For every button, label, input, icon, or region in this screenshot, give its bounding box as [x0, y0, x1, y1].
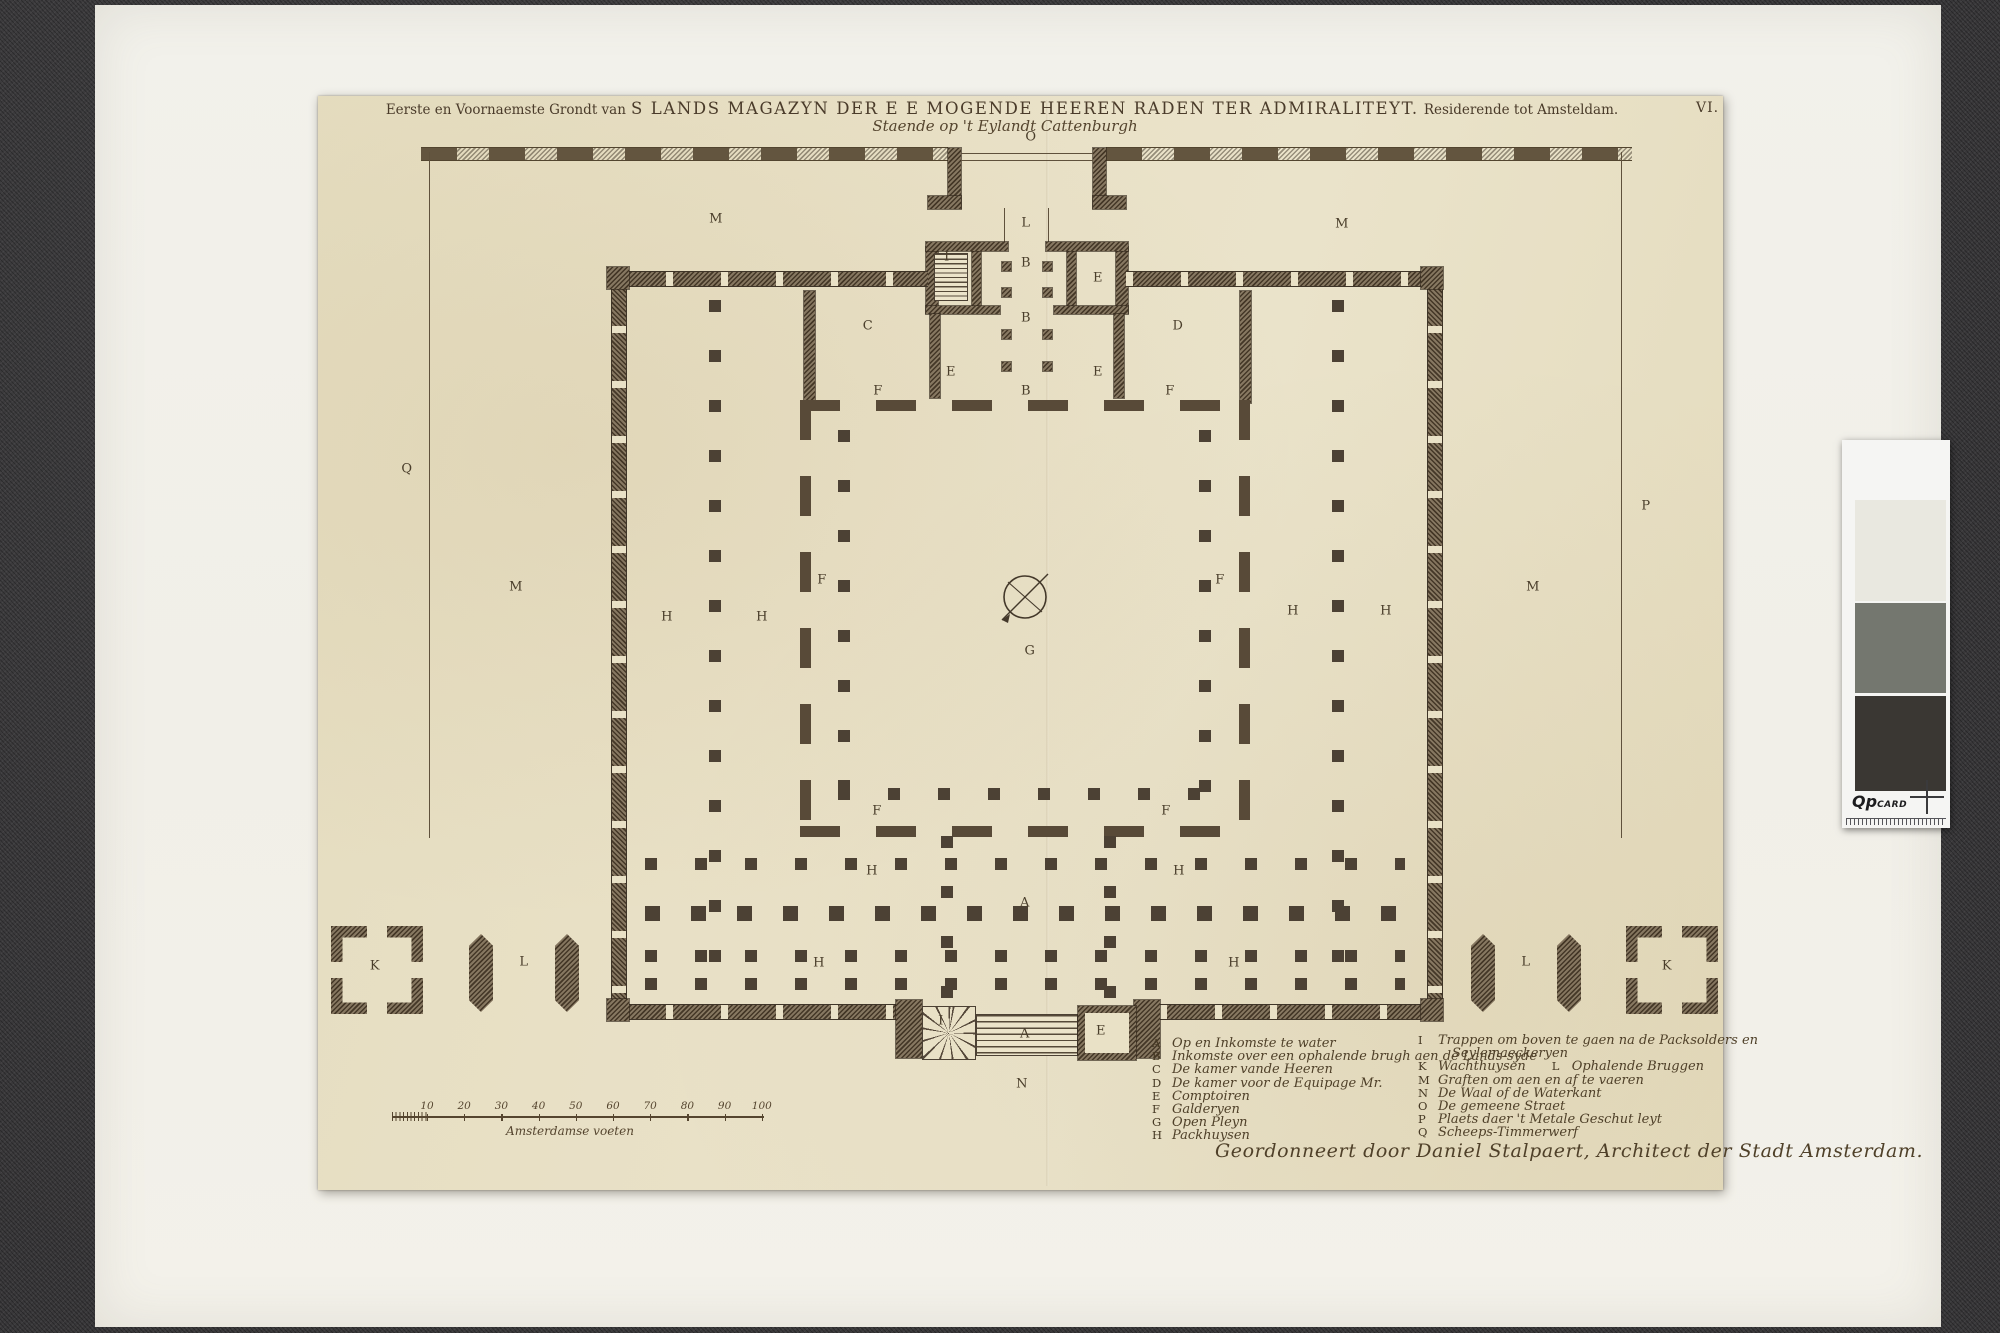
legend-key: C [1152, 1063, 1172, 1076]
card-patch-gray [1855, 603, 1946, 693]
plan-letter-E: E [1093, 365, 1103, 380]
plan-letter-K: K [370, 959, 380, 974]
plan-letter-F: F [872, 804, 882, 819]
legend-key: K [1418, 1060, 1438, 1073]
scale-number: 90 [718, 1100, 731, 1112]
plan-letter-H: H [813, 956, 825, 971]
plan-letter-I: I [938, 1014, 944, 1029]
architect-signature: Geordonneert door Daniel Stalpaert, Arch… [1215, 1140, 1685, 1162]
plan-letter-M: M [1335, 217, 1349, 232]
plan-letter-A: A [1020, 1027, 1030, 1042]
plan-letter-E: E [1096, 1024, 1106, 1039]
plan-letter-H: H [1228, 956, 1240, 971]
legend-right-column: ITrappen om boven te gaen na de Packsold… [1418, 1034, 1758, 1140]
card-ruler [1846, 818, 1946, 825]
scale-number: 60 [606, 1100, 619, 1112]
plan-letter-G: G [1025, 644, 1036, 659]
plan-letter-M: M [509, 580, 523, 595]
plan-letter-F: F [1215, 573, 1225, 588]
plan-letter-L: L [1021, 216, 1030, 231]
scale-tick [613, 1114, 614, 1121]
scale-number: 30 [495, 1100, 508, 1112]
scale-number: 80 [681, 1100, 694, 1112]
plan-letter-L: L [519, 955, 528, 970]
plan-letter-F: F [817, 573, 827, 588]
card-patch-dark [1855, 696, 1946, 791]
plan-letter-H: H [1380, 604, 1392, 619]
qp-card-logo: QpCARD [1852, 792, 1907, 811]
scale-tick [576, 1114, 577, 1121]
scale-tick [762, 1114, 763, 1121]
scale-number: 50 [569, 1100, 582, 1112]
legend-text: Scheeps-Timmerwerf [1438, 1125, 1578, 1140]
scale-tick [427, 1114, 428, 1121]
plan-letter-H: H [1173, 864, 1185, 879]
scale-number: 20 [458, 1100, 471, 1112]
plan-letter-Q: Q [401, 462, 412, 477]
scale-tick [464, 1114, 465, 1121]
plan-letter-F: F [873, 384, 883, 399]
scale-tick [539, 1114, 540, 1121]
plan-letter-E: E [1093, 271, 1103, 286]
scale-tick [725, 1114, 726, 1121]
plan-letter-B: B [1021, 384, 1031, 399]
plan-letter-B: B [1021, 311, 1031, 326]
legend-key: E [1152, 1090, 1172, 1103]
scale-number: 10 [420, 1100, 433, 1112]
legend-key: N [1418, 1087, 1438, 1100]
plan-letter-A: A [1020, 896, 1030, 911]
plan-letter-K: K [1662, 959, 1672, 974]
plan-letter-E: E [946, 365, 956, 380]
plan-letter-C: C [863, 319, 873, 334]
plan-letter-H: H [1287, 604, 1299, 619]
plan-letter-H: H [661, 610, 673, 625]
photo-of-engraving: Eerste en Voornaemste Grondt van S LANDS… [0, 0, 2000, 1333]
plan-letter-H: H [756, 610, 768, 625]
plan-letter-L: L [1521, 955, 1530, 970]
scale-tick [501, 1114, 502, 1121]
plan-letter-M: M [1526, 580, 1540, 595]
plan-letter-F: F [1161, 804, 1171, 819]
plan-letter-O: O [1025, 130, 1036, 145]
legend-key: I [1418, 1034, 1438, 1047]
scale-caption: Amsterdamse voeten [470, 1124, 670, 1138]
scale-number: 70 [644, 1100, 657, 1112]
scale-number: 40 [532, 1100, 545, 1112]
plan-letter-I: I [944, 250, 950, 265]
scale-number: 100 [752, 1100, 772, 1112]
legend-row: QScheeps-Timmerwerf [1418, 1126, 1758, 1139]
legend-key: D [1152, 1077, 1172, 1090]
scale-tick [687, 1114, 688, 1121]
qp-calibration-card: QpCARD [1842, 440, 1950, 828]
plan-letter-P: P [1641, 499, 1650, 514]
plan-letter-H: H [866, 864, 878, 879]
legend-key: M [1418, 1074, 1438, 1087]
crosshair-icon [1910, 780, 1944, 814]
legend-key: H [1152, 1129, 1172, 1142]
legend-key: Q [1418, 1126, 1438, 1139]
card-patch-light [1855, 500, 1946, 601]
plan-letter-N: N [1016, 1077, 1028, 1092]
plan-letter-F: F [1165, 384, 1175, 399]
scale-tick [650, 1114, 651, 1121]
plan-letter-B: B [1021, 256, 1031, 271]
plan-letter-D: D [1173, 319, 1184, 334]
plan-letter-M: M [709, 212, 723, 227]
